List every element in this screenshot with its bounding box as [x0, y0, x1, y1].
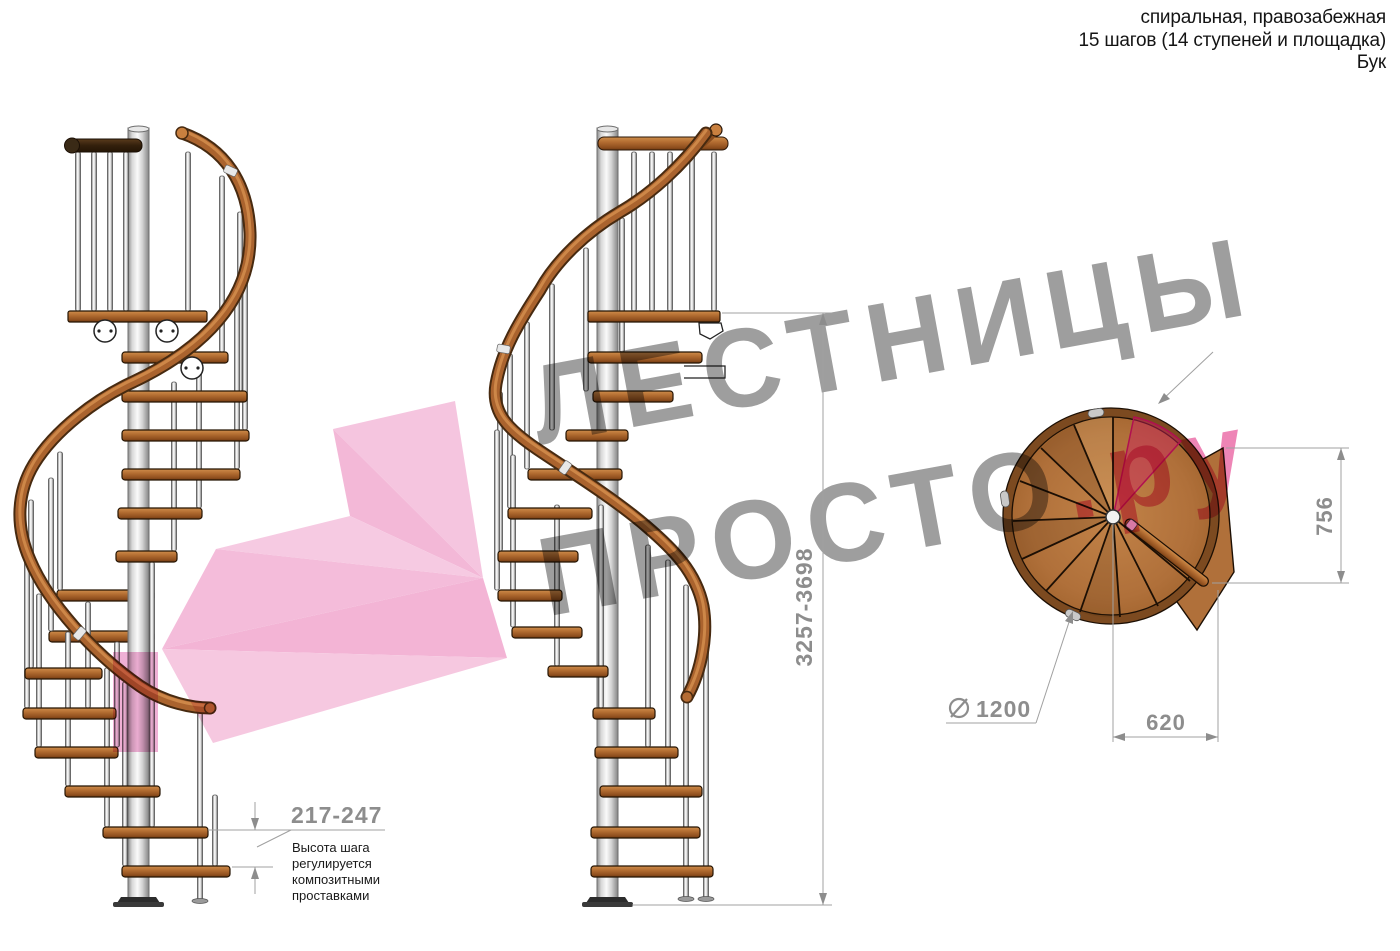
- arrowhead: [1065, 611, 1073, 624]
- dimension-diameter: 1200: [976, 696, 1031, 722]
- title-line-material: Бук: [1079, 52, 1387, 75]
- step-height-note: Высота шага регулируется композитными пр…: [292, 840, 422, 904]
- dimension-layer: 3257-3698 756 620 1200 217-247: [0, 0, 1400, 951]
- arrowhead: [1337, 571, 1345, 583]
- title-block: спиральная, правозабежная 15 шагов (14 с…: [1079, 7, 1387, 75]
- title-line-steps: 15 шагов (14 ступеней и площадка): [1079, 30, 1387, 53]
- arrowhead: [251, 818, 259, 830]
- arrowhead: [819, 893, 827, 905]
- arrowhead: [1113, 733, 1125, 741]
- arrowhead: [819, 313, 827, 325]
- diameter-symbol: [950, 699, 968, 717]
- dimension-total-height: 3257-3698: [791, 548, 817, 667]
- dimension-plan-width: 620: [1146, 710, 1186, 735]
- arrowhead: [1206, 733, 1218, 741]
- leader-line: [1036, 613, 1072, 723]
- arrowhead: [1337, 448, 1345, 460]
- technical-drawing-page: ЛЕСТНИЦЫ ПРОСТО.ру: [0, 0, 1400, 951]
- title-line-type: спиральная, правозабежная: [1079, 7, 1387, 30]
- leader-line: [257, 830, 291, 847]
- leader-line: [1160, 352, 1213, 402]
- dimension-plan-depth: 756: [1312, 496, 1337, 536]
- dimension-step-height: 217-247: [291, 802, 382, 828]
- arrowhead: [251, 867, 259, 879]
